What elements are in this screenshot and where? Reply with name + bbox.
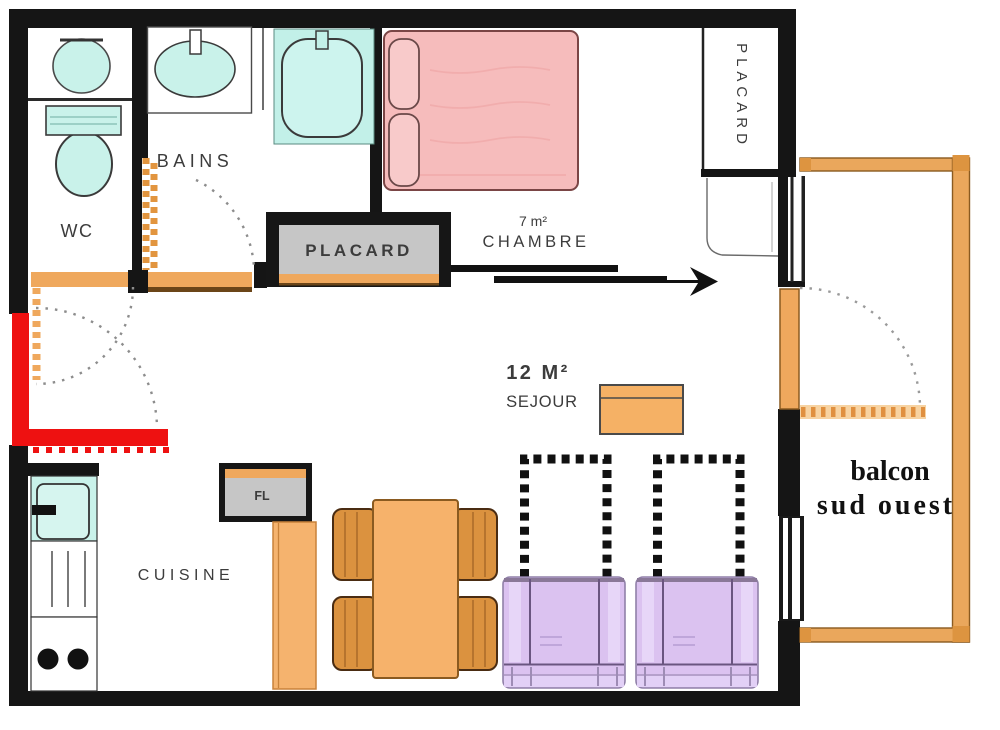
svg-text:WC: WC — [61, 221, 94, 241]
svg-text:PLACARD: PLACARD — [733, 43, 750, 149]
svg-text:balcon: balcon — [850, 456, 930, 487]
svg-text:FL: FL — [254, 489, 270, 503]
svg-text:12 M²: 12 M² — [506, 362, 570, 384]
svg-text:sud ouest: sud ouest — [817, 490, 955, 521]
svg-text:SEJOUR: SEJOUR — [506, 393, 578, 411]
svg-text:BAINS: BAINS — [157, 151, 234, 171]
svg-text:7 m²: 7 m² — [519, 213, 547, 229]
svg-text:CUISINE: CUISINE — [138, 567, 234, 584]
svg-text:PLACARD: PLACARD — [305, 241, 413, 260]
svg-text:CHAMBRE: CHAMBRE — [482, 233, 589, 251]
